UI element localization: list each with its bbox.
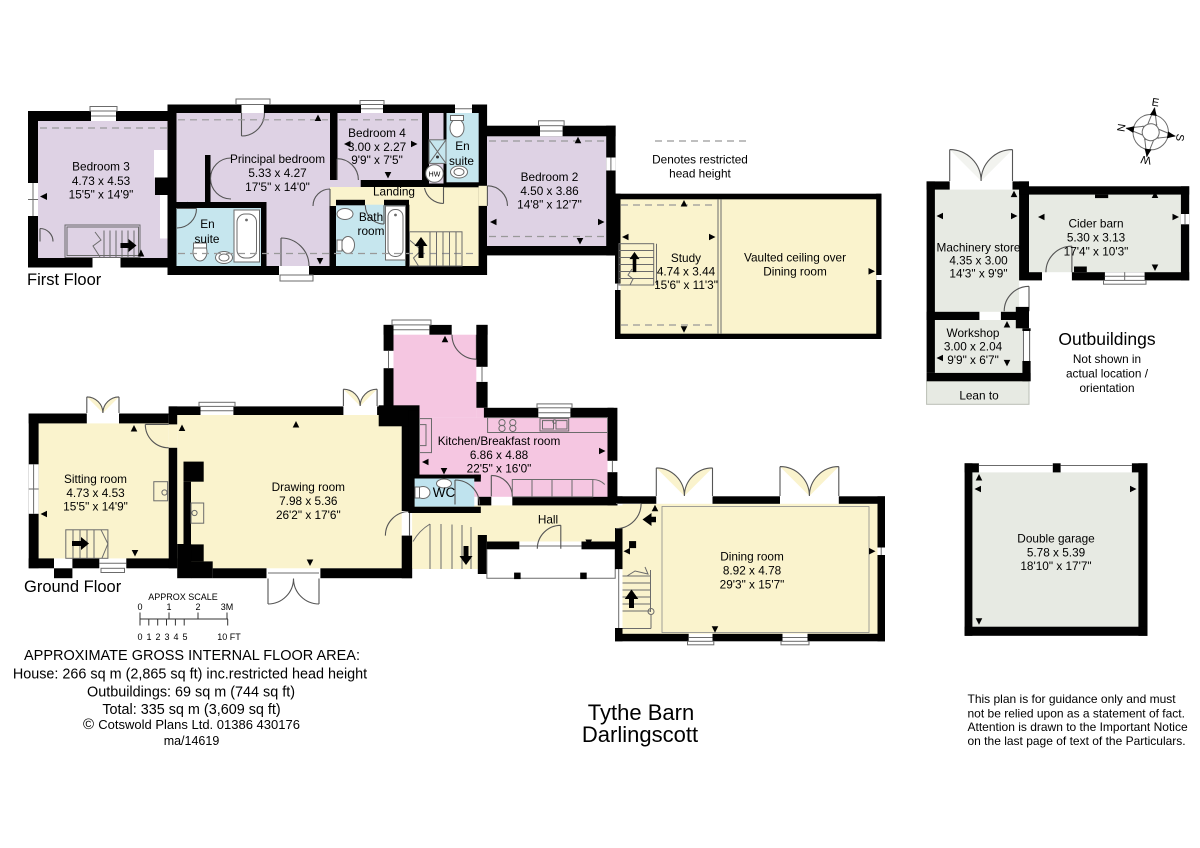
svg-text:suite: suite <box>195 232 220 246</box>
svg-text:4: 4 <box>173 632 178 642</box>
svg-text:Sitting room: Sitting room <box>64 472 127 486</box>
svg-text:4.74 x 3.44: 4.74 x 3.44 <box>657 265 716 279</box>
svg-text:15'5" x 14'9": 15'5" x 14'9" <box>69 188 134 202</box>
svg-text:1: 1 <box>146 632 151 642</box>
svg-text:Drawing room: Drawing room <box>272 480 346 494</box>
svg-text:15'5" x 14'9": 15'5" x 14'9" <box>63 500 128 514</box>
svg-text:14'3" x 9'9": 14'3" x 9'9" <box>949 267 1007 281</box>
svg-text:22'5" x 16'0": 22'5" x 16'0" <box>467 462 532 476</box>
svg-text:Darlingscott: Darlingscott <box>582 722 698 747</box>
svg-text:2: 2 <box>155 632 160 642</box>
svg-text:Outbuildings: Outbuildings <box>1058 329 1156 349</box>
svg-text:2: 2 <box>195 602 200 612</box>
svg-text:4.73 x 4.53: 4.73 x 4.53 <box>72 174 131 188</box>
svg-text:This plan is for guidance only: This plan is for guidance only and must <box>968 692 1177 706</box>
svg-text:APPROX SCALE: APPROX SCALE <box>148 592 218 602</box>
svg-text:Attention is drawn to the Impo: Attention is drawn to the Important Noti… <box>968 720 1188 734</box>
svg-text:26'2" x 17'6": 26'2" x 17'6" <box>276 508 341 522</box>
svg-text:17'4" x 10'3": 17'4" x 10'3" <box>1064 245 1129 259</box>
svg-text:suite: suite <box>449 154 474 168</box>
svg-text:head height: head height <box>669 167 731 181</box>
svg-text:Kitchen/Breakfast room: Kitchen/Breakfast room <box>438 434 561 448</box>
svg-text:ma/14619: ma/14619 <box>164 734 220 748</box>
svg-text:Dining room: Dining room <box>720 550 784 564</box>
svg-text:First Floor: First Floor <box>27 271 102 289</box>
svg-text:En: En <box>200 217 214 231</box>
svg-text:0: 0 <box>137 602 142 612</box>
svg-text:3: 3 <box>164 632 169 642</box>
svg-text:18'10" x 17'7": 18'10" x 17'7" <box>1020 559 1091 573</box>
svg-text:3M: 3M <box>221 602 234 612</box>
svg-text:8.92 x 4.78: 8.92 x 4.78 <box>723 564 782 578</box>
svg-text:Not shown in: Not shown in <box>1073 352 1141 366</box>
svg-text:0: 0 <box>137 632 142 642</box>
svg-text:Bath: Bath <box>359 210 383 224</box>
svg-text:not be relied upon as a statem: not be relied upon as a statement of fac… <box>968 707 1185 721</box>
svg-text:© Cotswold Plans Ltd. 01386 43: © Cotswold Plans Ltd. 01386 430176 <box>83 716 300 733</box>
svg-text:House: 266 sq m (2,865 sq ft): House: 266 sq m (2,865 sq ft) inc.restri… <box>13 667 367 683</box>
svg-text:3.00 x 2.04: 3.00 x 2.04 <box>944 340 1003 354</box>
svg-text:Denotes restricted: Denotes restricted <box>652 153 748 167</box>
svg-text:5.78 x 5.39: 5.78 x 5.39 <box>1027 546 1085 560</box>
svg-text:17'5" x 14'0": 17'5" x 14'0" <box>245 180 310 194</box>
svg-text:Machinery store: Machinery store <box>937 241 1021 255</box>
svg-text:orientation: orientation <box>1079 381 1134 395</box>
svg-text:HW: HW <box>429 172 441 179</box>
svg-text:Dining room: Dining room <box>763 265 827 279</box>
svg-text:Ground Floor: Ground Floor <box>24 578 122 596</box>
svg-text:10 FT: 10 FT <box>217 632 241 642</box>
svg-text:15'6" x 11'3": 15'6" x 11'3" <box>654 278 718 292</box>
svg-text:Bedroom 2: Bedroom 2 <box>521 170 579 184</box>
svg-text:9'9" x 7'5": 9'9" x 7'5" <box>351 153 403 167</box>
svg-text:Outbuildings: 69 sq m (744 sq: Outbuildings: 69 sq m (744 sq ft) <box>87 685 295 701</box>
svg-text:En: En <box>455 139 469 153</box>
svg-text:7.98 x 5.36: 7.98 x 5.36 <box>279 494 338 508</box>
svg-text:Lean to: Lean to <box>959 389 999 403</box>
svg-text:14'8" x 12'7": 14'8" x 12'7" <box>517 198 582 212</box>
svg-text:Study: Study <box>671 251 701 265</box>
svg-text:4.73 x 4.53: 4.73 x 4.53 <box>66 486 125 500</box>
svg-text:Hall: Hall <box>538 513 558 527</box>
svg-text:Cider barn: Cider barn <box>1068 217 1123 231</box>
svg-text:Bedroom 3: Bedroom 3 <box>72 160 130 174</box>
svg-text:5: 5 <box>182 632 187 642</box>
svg-text:29'3" x 15'7": 29'3" x 15'7" <box>720 578 785 592</box>
svg-text:Total: 335 sq m (3,609 sq ft): Total: 335 sq m (3,609 sq ft) <box>102 702 280 718</box>
svg-text:Principal bedroom: Principal bedroom <box>230 152 325 166</box>
svg-text:WC: WC <box>433 485 456 500</box>
svg-text:5.33 x 4.27: 5.33 x 4.27 <box>248 166 306 180</box>
svg-text:4.35 x 3.00: 4.35 x 3.00 <box>949 254 1008 268</box>
svg-text:Vaulted ceiling over: Vaulted ceiling over <box>744 251 846 265</box>
svg-text:5.30 x 3.13: 5.30 x 3.13 <box>1067 231 1126 245</box>
svg-text:9'9" x 6'7": 9'9" x 6'7" <box>947 353 999 367</box>
svg-text:Double garage: Double garage <box>1017 532 1095 546</box>
svg-text:on the last page of text of th: on the last page of text of the Particul… <box>968 734 1186 748</box>
svg-text:4.50 x 3.86: 4.50 x 3.86 <box>520 184 579 198</box>
svg-text:1: 1 <box>166 602 171 612</box>
svg-text:3.00 x 2.27: 3.00 x 2.27 <box>348 140 406 154</box>
svg-text:actual location /: actual location / <box>1066 367 1149 381</box>
svg-text:room: room <box>358 224 385 238</box>
svg-text:6.86 x 4.88: 6.86 x 4.88 <box>470 448 529 462</box>
svg-text:APPROXIMATE GROSS INTERNAL FLO: APPROXIMATE GROSS INTERNAL FLOOR AREA: <box>24 648 360 664</box>
svg-text:Workshop: Workshop <box>947 326 1000 340</box>
svg-text:Bedroom 4: Bedroom 4 <box>348 126 406 140</box>
